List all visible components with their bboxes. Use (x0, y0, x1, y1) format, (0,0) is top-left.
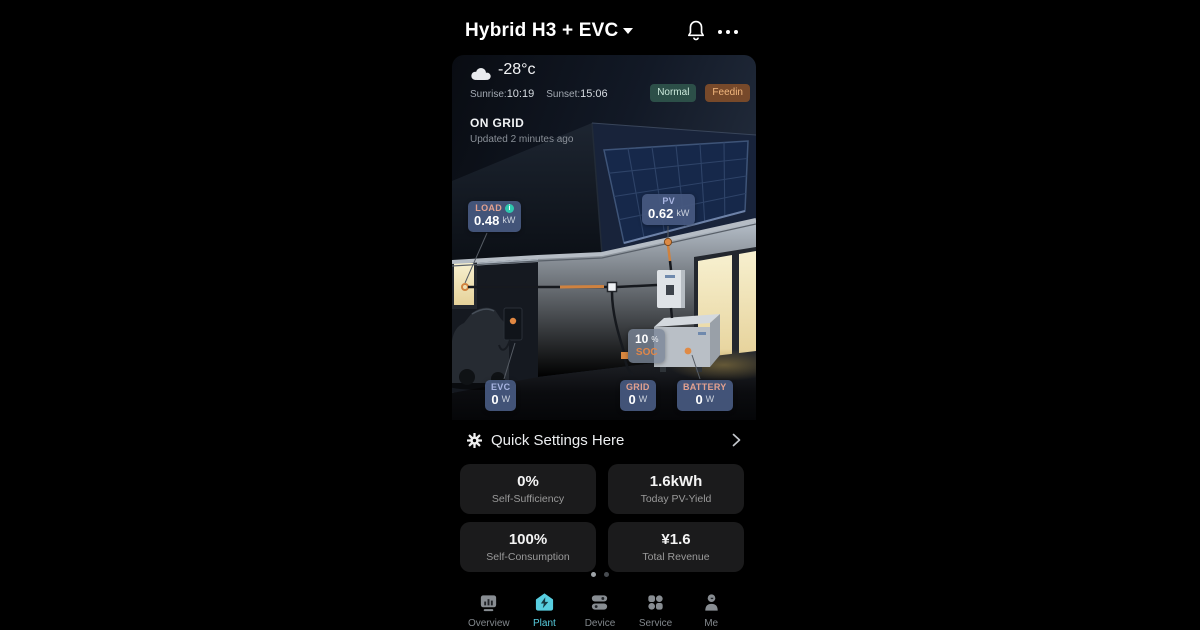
page-dot-active[interactable] (591, 572, 596, 577)
evc-power-badge[interactable]: EVC 0W (485, 380, 516, 411)
info-icon[interactable]: i (505, 204, 514, 213)
nav-item-service[interactable]: Service (628, 592, 684, 630)
letterbox-background: Hybrid H3 + EVC (0, 0, 1200, 630)
device-stack-icon (589, 592, 610, 613)
grid-power-badge[interactable]: GRID 0W (620, 380, 656, 411)
sun-times: Sunrise:10:19Sunset:15:06 (470, 88, 608, 100)
bottom-nav: Overview Plant Device (440, 592, 760, 630)
pv-power-badge[interactable]: PV 0.62kW (642, 194, 695, 225)
nav-item-device[interactable]: Device (572, 592, 628, 630)
nav-item-me[interactable]: Me (683, 592, 739, 630)
temperature: -28°c (498, 61, 536, 79)
plant-house-icon (534, 592, 555, 613)
phone-screen: Hybrid H3 + EVC (440, 0, 760, 630)
gear-icon (467, 433, 482, 448)
dashboard-icon (478, 592, 499, 613)
stats-cards: 0% Self-Sufficiency 1.6kWh Today PV-Yiel… (460, 464, 744, 572)
last-updated: Updated 2 minutes ago (470, 134, 573, 145)
status-badge-normal[interactable]: Normal (650, 84, 696, 102)
grid-mode: ON GRID (470, 116, 524, 130)
notification-bell-icon[interactable] (685, 19, 707, 43)
window-right-2 (739, 251, 756, 357)
quick-settings-label: Quick Settings Here (491, 432, 624, 449)
plant-hero: -28°c Sunrise:10:19Sunset:15:06 Normal F… (452, 55, 756, 420)
house-illustration (452, 55, 756, 420)
battery-power-badge[interactable]: BATTERY 0W (677, 380, 733, 411)
page-title: Hybrid H3 + EVC (465, 20, 618, 41)
stat-card-pv-yield[interactable]: 1.6kWh Today PV-Yield (608, 464, 744, 514)
chevron-right-icon (732, 433, 741, 447)
stat-card-self-consumption[interactable]: 100% Self-Consumption (460, 522, 596, 572)
more-options-icon[interactable] (718, 27, 744, 37)
page-dot[interactable] (604, 572, 609, 577)
chevron-down-icon (623, 28, 633, 34)
pagination-dots (440, 572, 760, 577)
service-grid-icon (645, 592, 666, 613)
user-icon (701, 592, 722, 613)
app-header: Hybrid H3 + EVC (440, 14, 760, 50)
nav-item-plant[interactable]: Plant (517, 592, 573, 630)
status-badge-feedin[interactable]: Feedin (705, 84, 750, 102)
plant-selector[interactable]: Hybrid H3 + EVC (465, 20, 633, 42)
cloud-icon (469, 66, 493, 87)
quick-settings-row[interactable]: Quick Settings Here (440, 424, 760, 456)
nav-item-overview[interactable]: Overview (461, 592, 517, 630)
stat-card-self-sufficiency[interactable]: 0% Self-Sufficiency (460, 464, 596, 514)
stat-card-total-revenue[interactable]: ¥1.6 Total Revenue (608, 522, 744, 572)
load-power-badge[interactable]: LOADi 0.48kW (468, 201, 521, 232)
battery-soc-badge[interactable]: 10% SOC (628, 329, 665, 363)
